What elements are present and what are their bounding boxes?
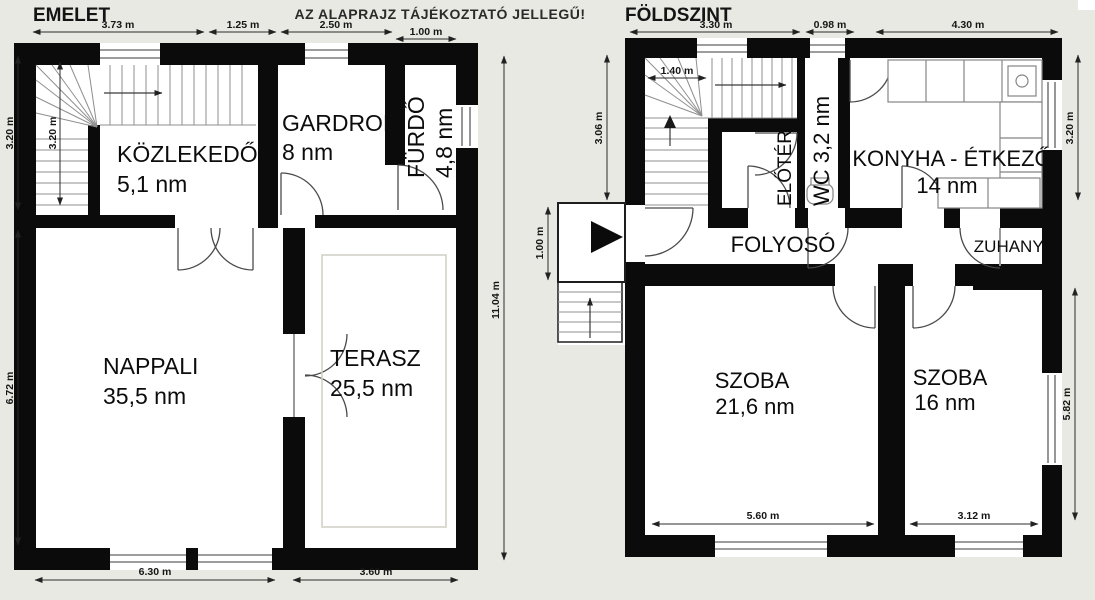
dim-foldszint-right-lower: 5.82 m xyxy=(1061,388,1073,421)
dim-foldszint-top-2: 0.98 m xyxy=(814,19,847,31)
room-label-nappali: NAPPALI xyxy=(103,353,198,379)
room-area-furdo: 4,8 nm xyxy=(431,108,457,178)
dim-emelet-top-3: 2.50 m xyxy=(320,19,353,31)
floorplan-image: EMELET AZ ALAPRAJZ TÁJÉKOZTATÓ JELLEGŰ! … xyxy=(0,0,1095,600)
dim-emelet-left-lower: 6.72 m xyxy=(4,372,16,405)
room-area-kozlekedo: 5,1 nm xyxy=(117,171,187,197)
dim-emelet-top-4: 1.00 m xyxy=(410,26,443,38)
room-label-zuhany: ZUHANY. xyxy=(974,237,1046,256)
room-area-konyha: 14 nm xyxy=(916,173,977,198)
page-corner-strip xyxy=(1078,0,1095,10)
dim-foldszint-bottom-2: 3.12 m xyxy=(958,510,991,522)
emelet-title: EMELET xyxy=(33,5,110,26)
emelet-plan: KÖZLEKEDŐ 5,1 nm GARDROB 8 nm FÜRDŐ 4,8 … xyxy=(4,19,504,580)
room-label-konyha: KONYHA - ÉTKEZŐ xyxy=(852,146,1051,171)
room-area-nappali: 35,5 nm xyxy=(103,383,186,409)
dim-foldszint-bottom-1: 5.60 m xyxy=(747,510,780,522)
room-label-gardrob: GARDROB xyxy=(282,110,398,136)
room-area-szoba-nagy: 21,6 nm xyxy=(715,394,795,419)
dim-emelet-top-2: 1.25 m xyxy=(227,19,260,31)
dim-foldszint-top-1: 3.30 m xyxy=(700,19,733,31)
room-area-terasz: 25,5 nm xyxy=(330,375,413,401)
room-area-szoba-kis: 16 nm xyxy=(914,390,975,415)
room-label-furdo: FÜRDŐ xyxy=(403,96,429,178)
floor-plans-canvas: EMELET AZ ALAPRAJZ TÁJÉKOZTATÓ JELLEGŰ! … xyxy=(0,0,1095,600)
foldszint-plan: ELŐTÉR WC 3,2 nm KONYHA - ÉTKEZŐ 14 nm F… xyxy=(534,19,1078,557)
dim-emelet-top-1: 3.73 m xyxy=(102,19,135,31)
room-label-szoba-nagy: SZOBA xyxy=(715,368,790,393)
room-label-szoba-kis: SZOBA xyxy=(913,365,988,390)
dim-foldszint-stair: 1.40 m xyxy=(661,65,694,77)
dim-emelet-stair: 3.20 m xyxy=(47,117,59,150)
room-label-eloter: ELŐTÉR xyxy=(774,130,796,206)
room-label-kozlekedo: KÖZLEKEDŐ xyxy=(117,141,258,167)
dim-emelet-right: 11.04 m xyxy=(490,281,502,319)
room-area-gardrob: 8 nm xyxy=(282,139,333,165)
room-label-folyoso: FOLYOSÓ xyxy=(731,232,836,257)
dim-emelet-bottom-2: 3.60 m xyxy=(360,566,393,578)
dim-foldszint-left-upper: 3.06 m xyxy=(593,112,605,145)
dim-foldszint-top-3: 4.30 m xyxy=(952,19,985,31)
room-label-terasz: TERASZ xyxy=(330,345,421,371)
dim-emelet-left-upper: 3.20 m xyxy=(4,117,16,150)
dim-emelet-bottom-1: 6.30 m xyxy=(139,566,172,578)
dim-foldszint-porch: 1.00 m xyxy=(534,227,546,260)
dim-foldszint-right-upper: 3.20 m xyxy=(1064,112,1076,145)
room-label-wc: WC 3,2 nm xyxy=(809,96,834,206)
